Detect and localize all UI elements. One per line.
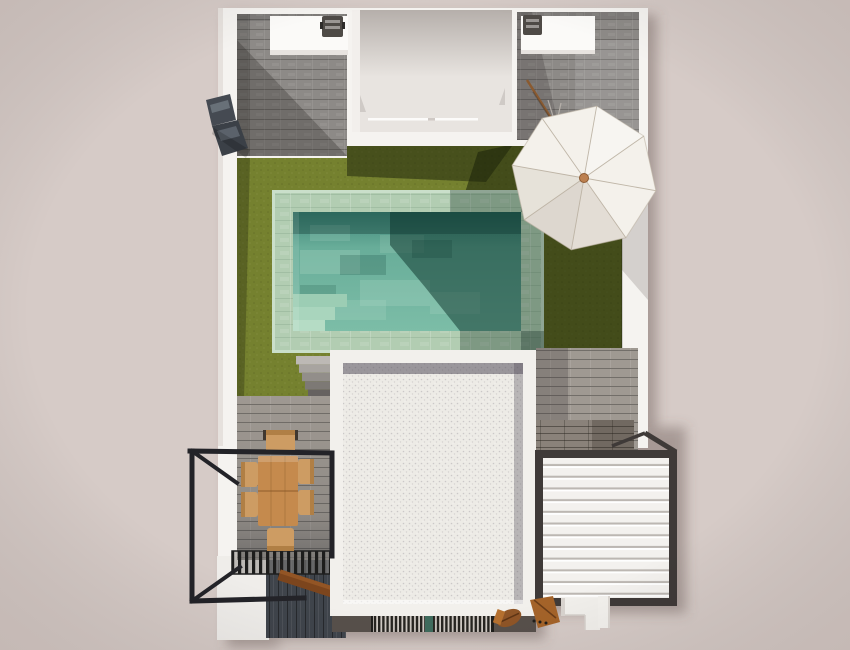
villa-top-view-render: [0, 0, 850, 650]
render-viewport: [0, 0, 850, 650]
vignette-overlay: [0, 0, 850, 650]
